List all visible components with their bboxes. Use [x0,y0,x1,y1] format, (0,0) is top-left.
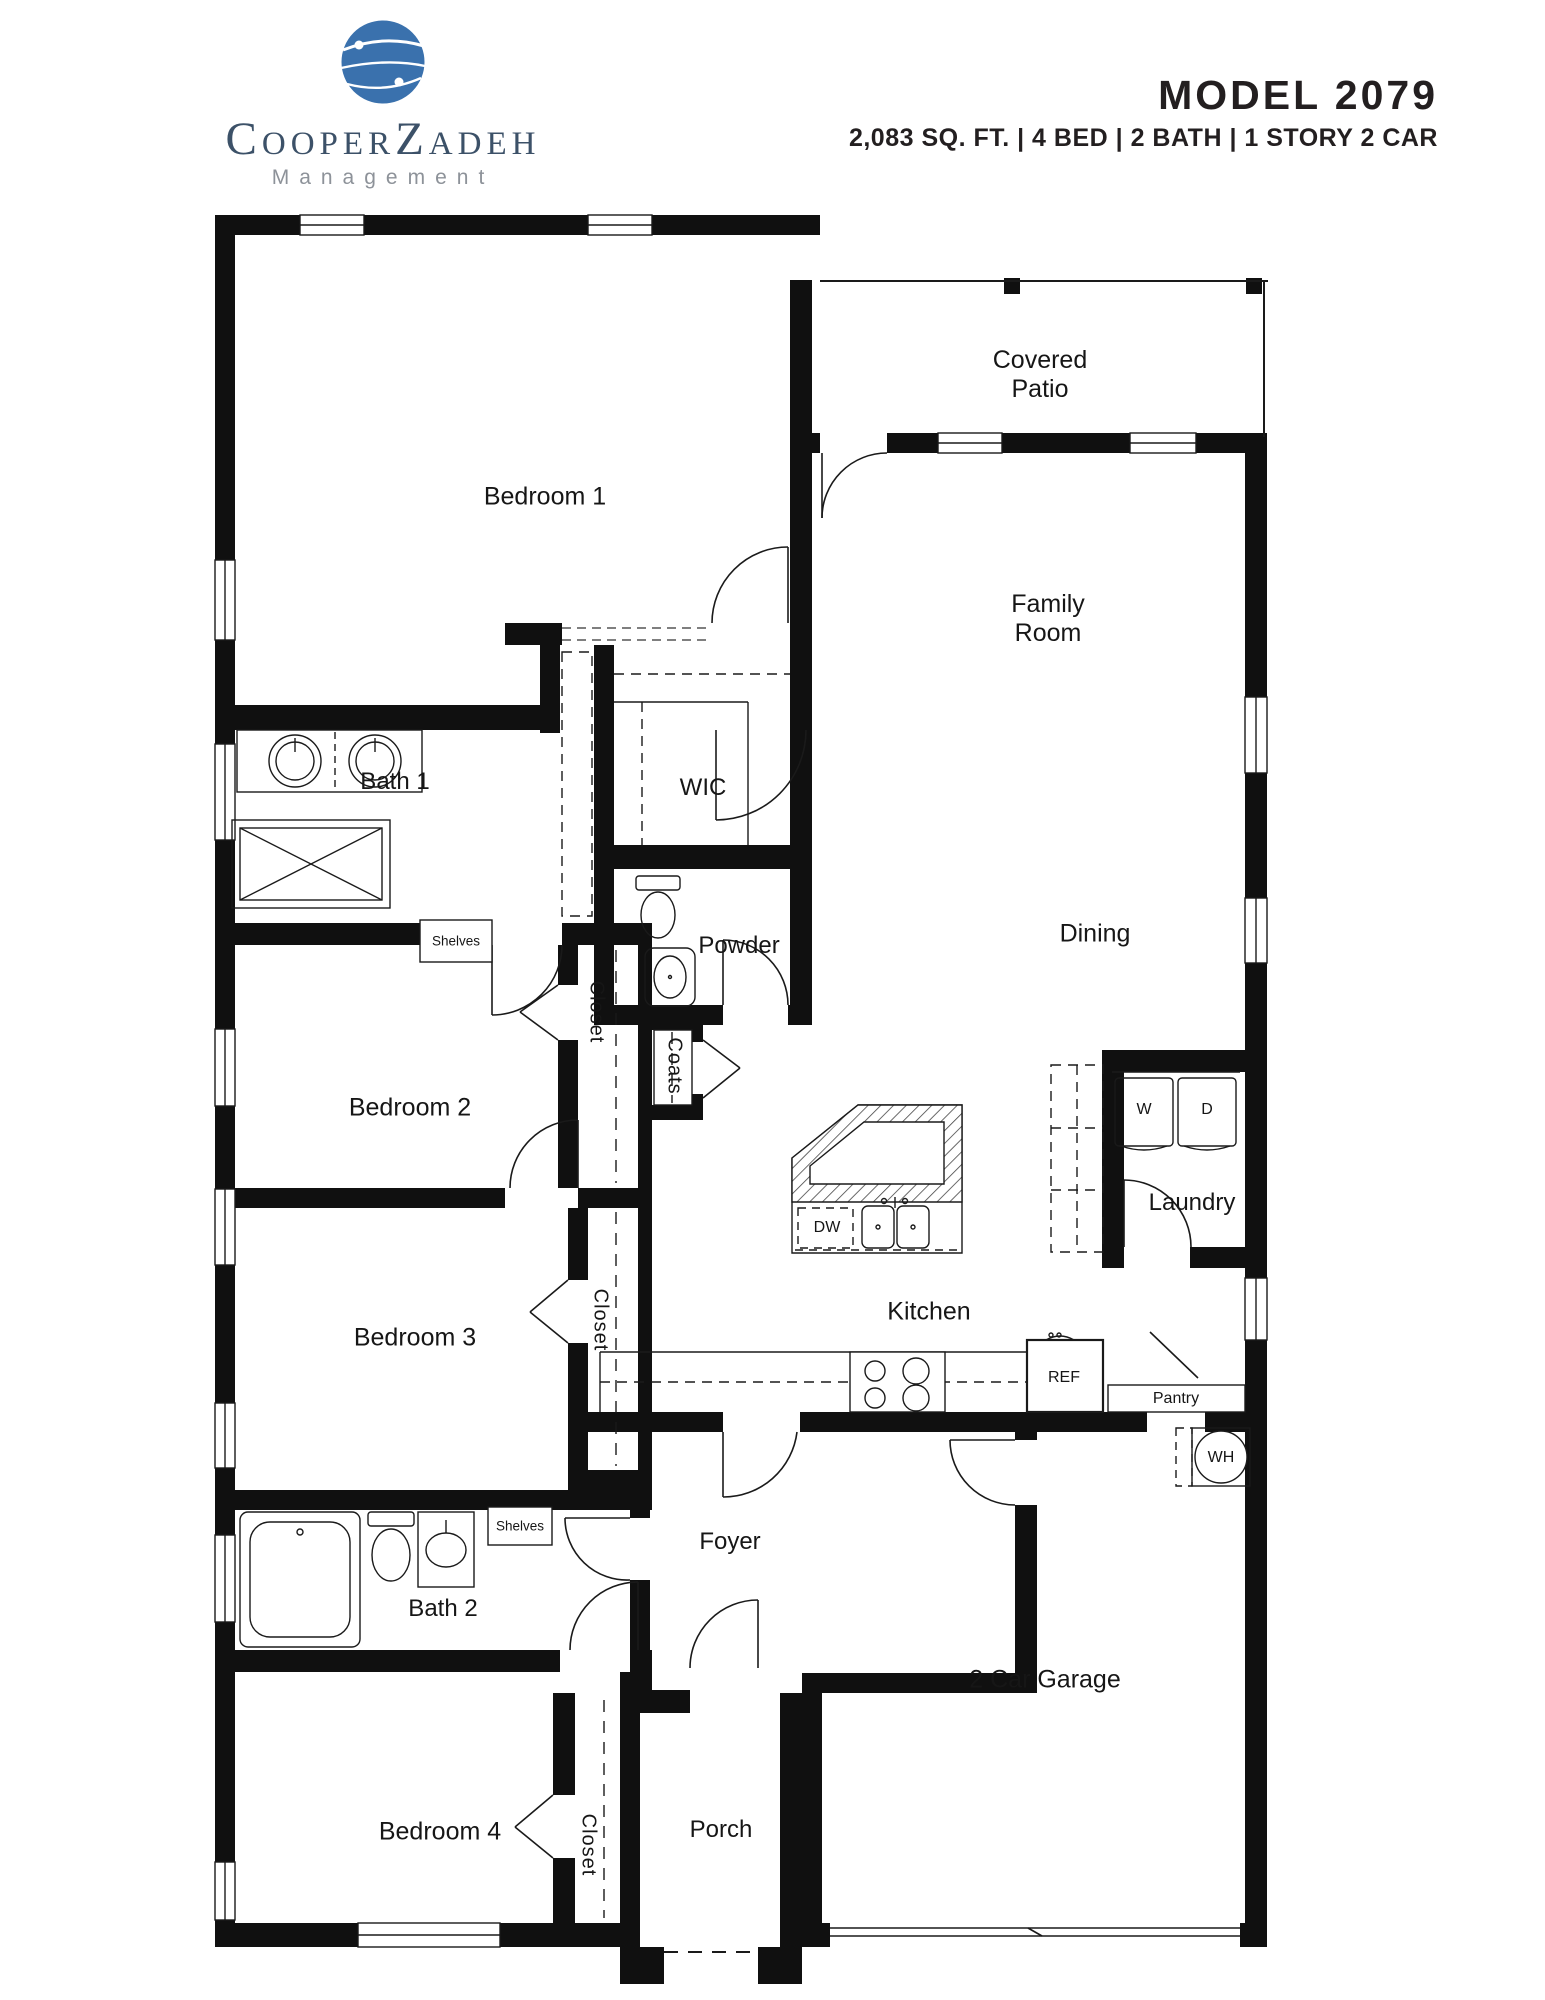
garage-door [830,1928,1240,1936]
door-hall-foyer [723,1432,797,1497]
label-shelves-bath1: Shelves [432,934,480,949]
label-family-room: Family Room [1011,590,1085,648]
label-bedroom4: Bedroom 4 [379,1818,501,1847]
door-bedroom2 [492,945,562,1015]
door-bedroom1 [712,547,788,623]
door-bedroom4 [570,1582,638,1650]
door-patio-family [822,453,887,518]
label-bath2: Bath 2 [408,1595,477,1623]
floor-plan-sheet: CooperZadeh Management MODEL 2079 2,083 … [0,0,1545,2000]
label-closet-bedroom4: Closet [577,1814,600,1877]
door-bath2 [565,1518,630,1580]
label-porch: Porch [690,1816,753,1844]
label-bedroom3: Bedroom 3 [354,1324,476,1353]
bath1-shower [232,820,390,908]
label-foyer: Foyer [699,1528,760,1556]
label-wic: WIC [680,774,727,802]
label-kitchen: Kitchen [887,1298,970,1327]
bath2-toilet [368,1512,414,1581]
linen-closet [562,652,592,916]
bath2-tub [240,1512,360,1647]
dining-cabinet [1051,1065,1103,1252]
label-closet-bedroom3: Closet [589,1289,612,1352]
label-powder: Powder [698,932,779,960]
door-garage-entry [950,1440,1015,1505]
label-washer: W [1136,1101,1151,1119]
label-coats: Coats [663,1037,686,1094]
label-covered-patio: Covered Patio [993,346,1088,404]
label-garage: 2 Car Garage [969,1666,1120,1695]
floor-plan-drawing [0,0,1545,2000]
bifold-coats [703,1040,740,1098]
stove [850,1352,945,1412]
bifold-closet-bedroom4 [515,1795,553,1858]
wic-shelving [614,674,790,845]
powder-sink [645,948,695,1006]
label-bath1: Bath 1 [360,768,429,796]
label-dining: Dining [1060,920,1131,949]
door-pantry-ajar [1150,1332,1198,1378]
label-dishwasher: DW [814,1219,841,1237]
cased-opening-wic [562,623,712,645]
label-shelves-bath2: Shelves [496,1519,544,1534]
label-bedroom2: Bedroom 2 [349,1094,471,1123]
bath2-sink [418,1512,474,1587]
kitchen-counter [600,1352,1027,1412]
label-closet-bedroom2: Closet [585,981,608,1044]
door-front-entry [690,1600,758,1668]
label-laundry: Laundry [1149,1189,1236,1217]
label-water-heater: WH [1208,1449,1235,1467]
label-refrigerator: REF [1048,1369,1080,1387]
bifold-closet-bedroom2 [520,985,558,1040]
bifold-closet-bedroom3 [530,1280,568,1343]
floor-plan: Bedroom 1 Covered Patio Family Room Bath… [0,0,1545,2000]
label-bedroom1: Bedroom 1 [484,483,606,512]
label-pantry: Pantry [1153,1390,1199,1408]
label-dryer: D [1201,1101,1213,1119]
